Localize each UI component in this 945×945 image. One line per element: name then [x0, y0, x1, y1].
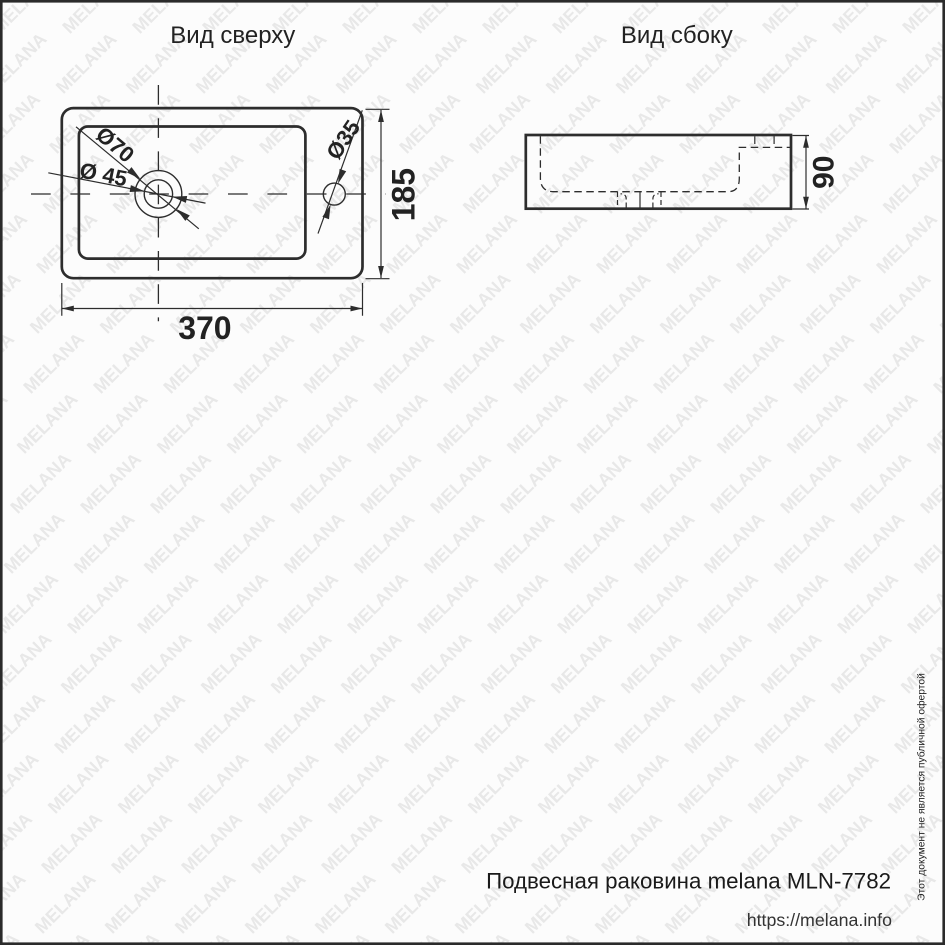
svg-text:370: 370	[178, 310, 231, 346]
svg-text:Подвесная раковина melana MLN-: Подвесная раковина melana MLN-7782	[486, 869, 891, 894]
svg-text:Этот документ не является публ: Этот документ не является публичной офер…	[916, 673, 928, 901]
svg-text:185: 185	[386, 168, 422, 221]
svg-text:90: 90	[808, 156, 841, 189]
svg-text:Вид сбоку: Вид сбоку	[621, 22, 733, 49]
svg-text:https://melana.info: https://melana.info	[747, 910, 892, 930]
svg-text:Вид сверху: Вид сверху	[170, 22, 295, 49]
